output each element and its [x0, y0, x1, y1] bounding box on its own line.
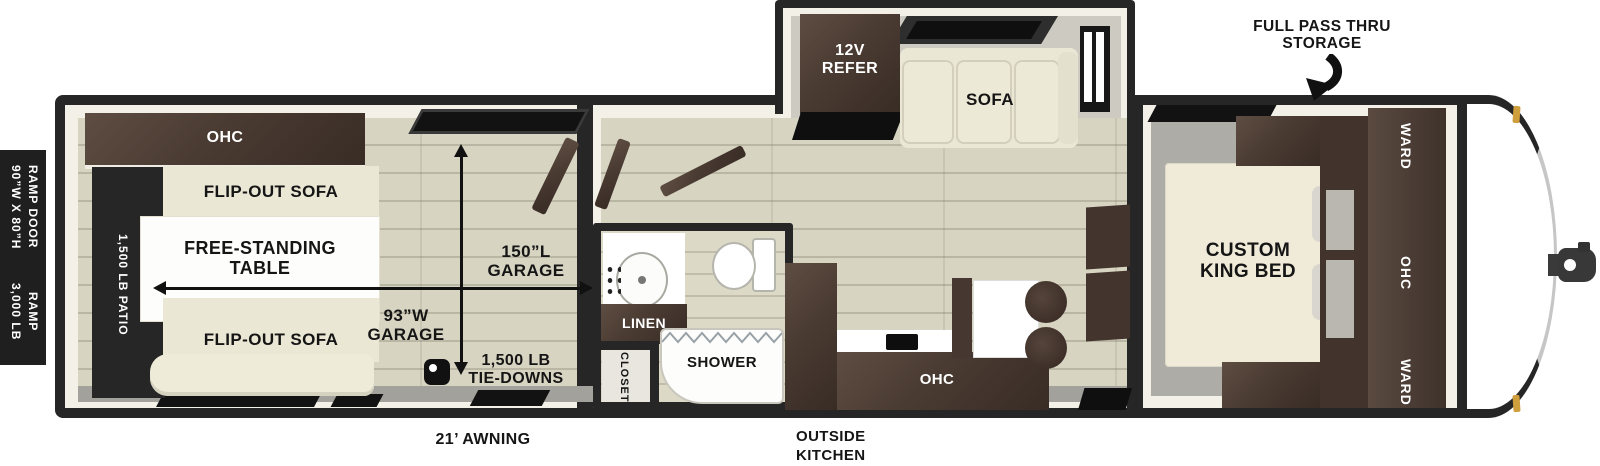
ramp-door-weight-line1: 3,000 LB RAMP — [7, 262, 41, 362]
slideout-window-pane-2 — [1096, 32, 1104, 102]
refrigerator-cabinet: 12V REFER — [800, 14, 900, 114]
garage-width-label: 93”W GARAGE — [356, 306, 456, 344]
hitch-coupler-hole — [1564, 259, 1576, 271]
marker-light-bottom — [1512, 395, 1520, 412]
bedroom-ohc-label: OHC — [1398, 250, 1418, 296]
garage-width-line1: 93”W — [356, 306, 456, 325]
table-label-line2: TABLE — [140, 258, 380, 278]
shower-curtain-zigzag — [662, 330, 782, 346]
sofa-armrest — [1058, 52, 1078, 144]
ramp-door-size-label: 90”W X 80”H RAMP DOOR — [7, 153, 43, 261]
refrigerator-label-line1: 12V — [800, 42, 900, 60]
flip-out-sofa-bottom-label: FLIP-OUT SOFA — [168, 330, 374, 349]
bath-partition-v — [650, 341, 659, 410]
garage-length-line2: GARAGE — [468, 261, 584, 280]
garage-ohc-cabinet: OHC — [85, 113, 365, 169]
pass-thru-storage-line1: FULL PASS THRU — [1232, 18, 1412, 35]
pass-thru-storage-line2: STORAGE — [1232, 35, 1412, 52]
kitchen-ohc-label: OHC — [877, 372, 997, 389]
headboard-cubby-2 — [1326, 260, 1354, 338]
slideout-window — [1080, 26, 1110, 112]
tie-downs-label: 1,500 LB TIE-DOWNS — [456, 352, 576, 388]
king-bed-label: CUSTOM KING BED — [1173, 240, 1323, 283]
wardrobe-bottom-label: WARD — [1398, 356, 1418, 408]
garage-width-line2: GARAGE — [356, 325, 456, 344]
dinette-chair-2 — [1025, 327, 1067, 369]
living-wall-cabinet-1 — [1086, 204, 1130, 269]
garage-length-label: 150”L GARAGE — [468, 242, 584, 280]
hitch-latch — [1578, 242, 1590, 252]
king-bed-line2: KING BED — [1173, 261, 1323, 282]
wardrobe-top-label: WARD — [1398, 120, 1418, 172]
slideout-window-pane-1 — [1084, 32, 1092, 102]
floorplan-canvas: 90”W X 80”H RAMP DOOR 3,000 LB RAMP DOOR… — [0, 0, 1600, 466]
hitch-coupler — [1558, 248, 1596, 282]
folded-sofa-bench — [150, 354, 374, 396]
kitchen-end-panel — [952, 278, 972, 358]
kitchen-stove — [886, 334, 918, 350]
closet-label: CLOSET — [618, 352, 634, 402]
tie-down-icon — [424, 359, 450, 385]
front-cap — [1467, 95, 1557, 418]
refrigerator-base — [792, 112, 904, 140]
garage-bottom-window-3 — [470, 390, 551, 406]
kitchen-ohc-run: OHC — [837, 352, 1049, 410]
refrigerator-label: 12V REFER — [800, 42, 900, 78]
living-wall-cabinet-2 — [1086, 270, 1130, 341]
pass-thru-storage-label: FULL PASS THRU STORAGE — [1232, 18, 1412, 53]
bathroom-faucet-dots — [605, 264, 621, 298]
garage-ohc-label: OHC — [85, 129, 365, 147]
tie-downs-line1: 1,500 LB — [456, 352, 576, 370]
bedroom-cabinet-top — [1236, 116, 1322, 166]
awning-label: 21’ AWNING — [393, 431, 573, 449]
sofa-label: SOFA — [940, 90, 1040, 109]
bathroom-sink-drain — [638, 276, 646, 284]
flip-out-sofa-top-label: FLIP-OUT SOFA — [168, 182, 374, 201]
garage-length-arrow — [460, 157, 463, 362]
slideout-sofa: SOFA — [900, 48, 1078, 148]
kitchen-pantry-cabinet — [785, 263, 837, 410]
shower-label: SHOWER — [666, 355, 778, 372]
headboard-cubby-1 — [1326, 190, 1354, 250]
table-label-line1: FREE-STANDING — [140, 238, 380, 258]
slideout-roof-vent-glass — [906, 21, 1042, 39]
free-standing-table-label: FREE-STANDING TABLE — [140, 238, 380, 278]
king-bed-line1: CUSTOM — [1173, 240, 1323, 261]
tie-down-icon-ring — [429, 364, 437, 372]
outside-kitchen-label: OUTSIDE KITCHEN — [796, 427, 906, 465]
bedroom-cabinet-bottom — [1222, 362, 1322, 408]
slideout-roof-vent — [890, 16, 1058, 44]
tie-downs-line2: TIE-DOWNS — [456, 370, 576, 388]
garage-width-arrow — [166, 287, 580, 290]
refrigerator-label-line2: REFER — [800, 60, 900, 78]
ramp-door-size-line1: 90”W X 80”H — [7, 153, 24, 261]
dinette-chair-1 — [1025, 281, 1067, 323]
ramp-door-size-line2: RAMP DOOR — [24, 153, 41, 261]
toilet-bowl — [712, 242, 756, 290]
outside-kitchen-line1: OUTSIDE — [796, 427, 906, 446]
ramp-door-weight-label: 3,000 LB RAMP DOOR — [7, 262, 43, 362]
garage-top-window — [408, 109, 589, 134]
garage-length-line1: 150”L — [468, 242, 584, 261]
outside-kitchen-line2: KITCHEN — [796, 446, 906, 465]
patio-label: 1,500 LB PATIO — [116, 212, 136, 357]
pass-thru-storage-arrow — [1294, 54, 1346, 102]
entry-step — [1078, 388, 1132, 410]
marker-light-top — [1512, 106, 1520, 123]
